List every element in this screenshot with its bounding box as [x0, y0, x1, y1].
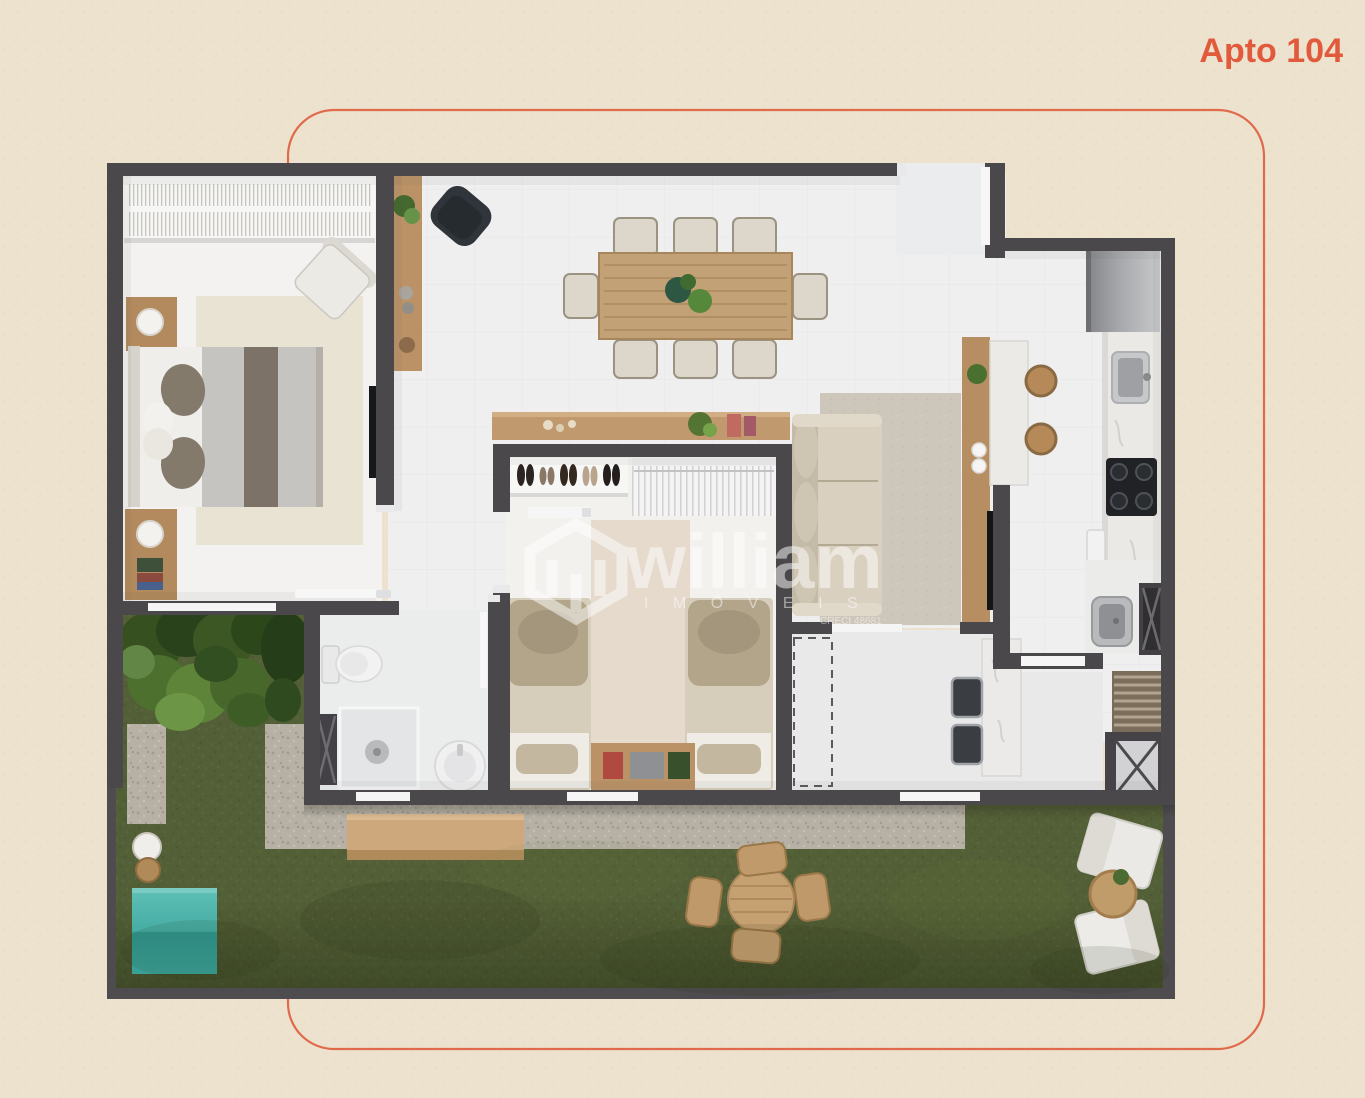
svg-text:CRECI 48681: CRECI 48681: [820, 616, 882, 627]
svg-text:Apto 104: Apto 104: [1199, 32, 1343, 70]
svg-text:IMÓVEIS: IMÓVEIS: [644, 593, 882, 612]
svg-text:william: william: [625, 519, 883, 605]
